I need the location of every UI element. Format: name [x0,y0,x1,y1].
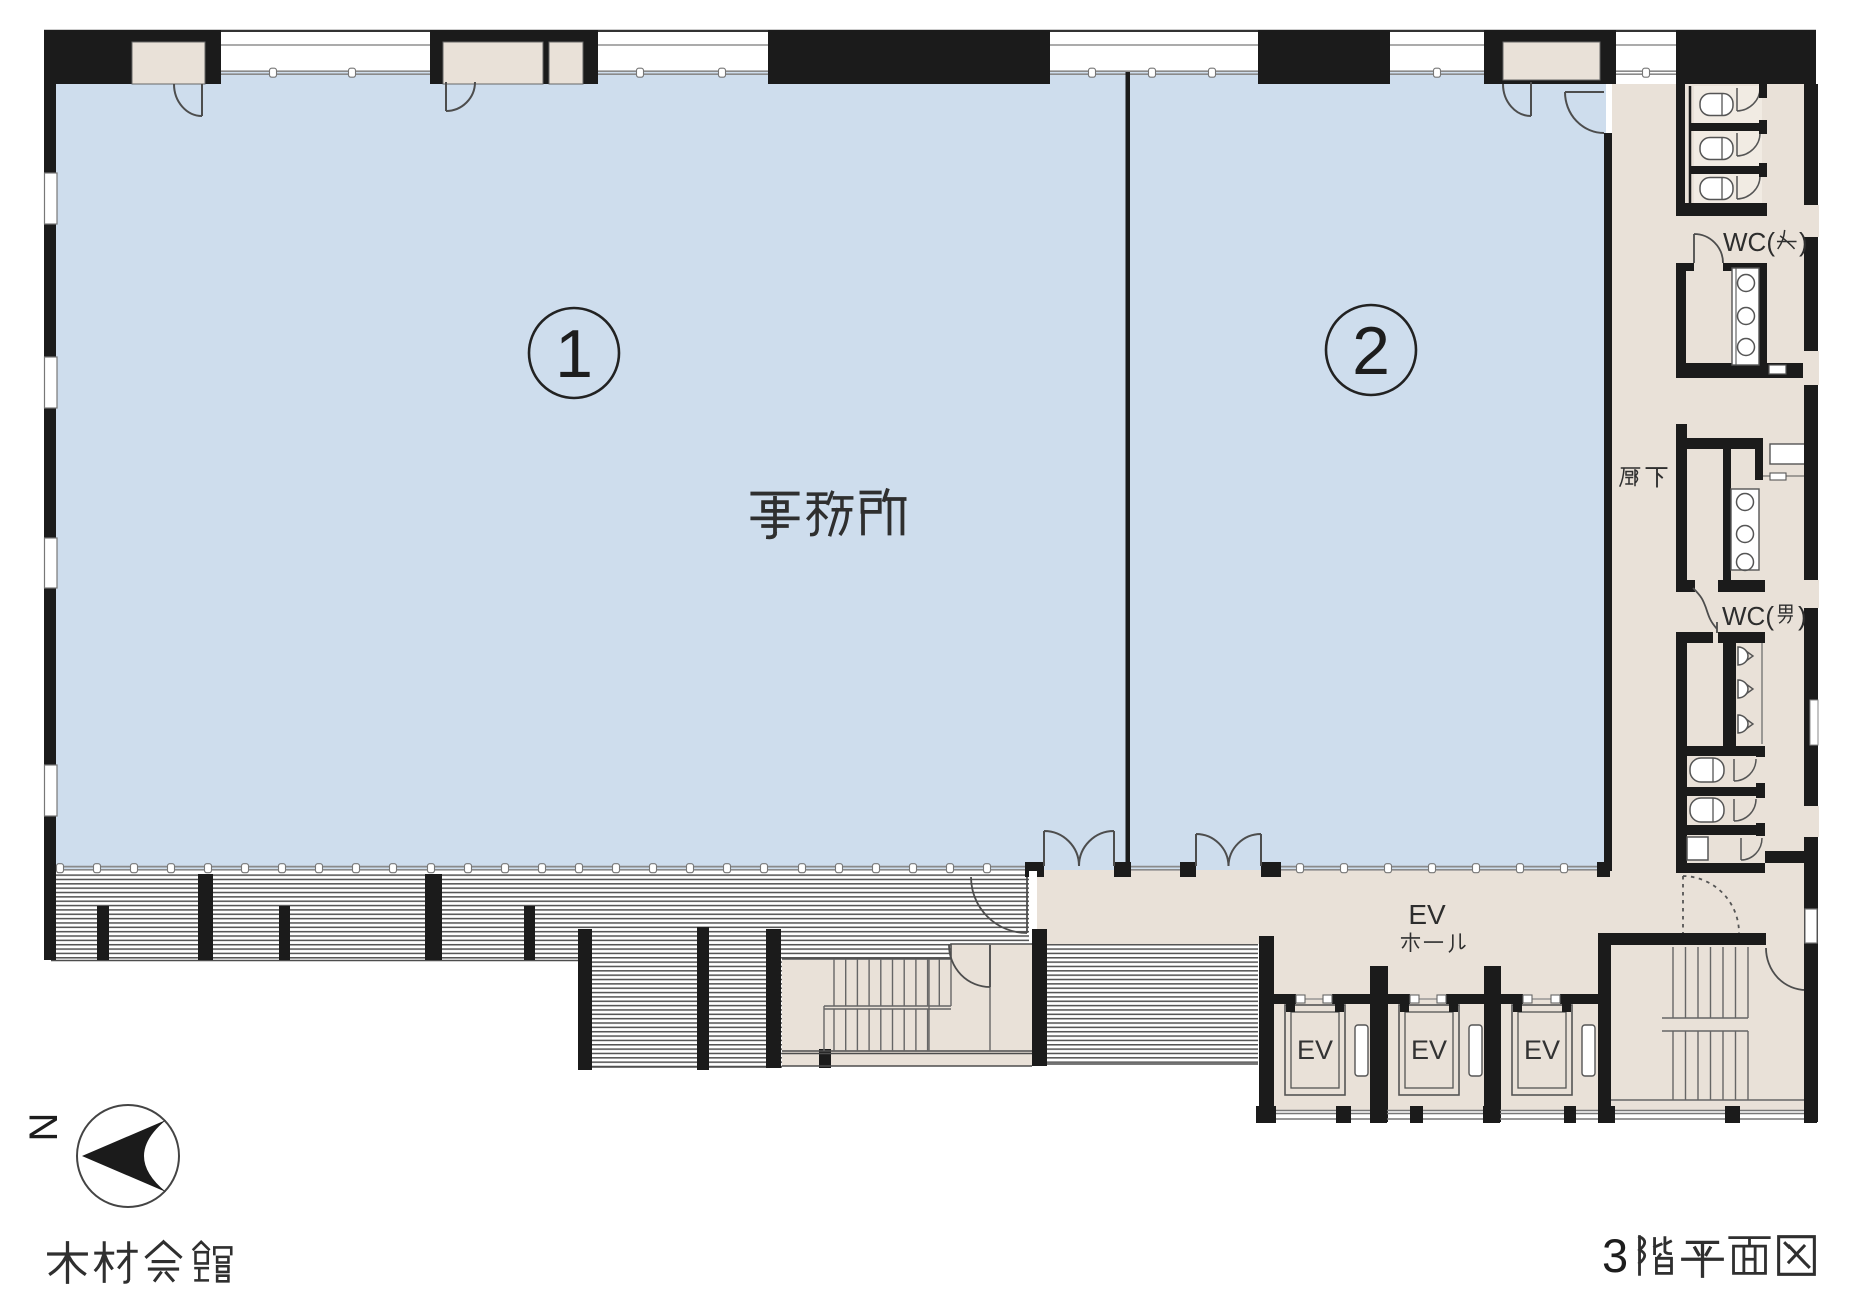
svg-text:3: 3 [1602,1229,1628,1282]
svg-text:EV: EV [1411,1035,1447,1065]
svg-text:EV: EV [1408,899,1446,930]
svg-text:WC(: WC( [1723,227,1775,257]
svg-text:): ) [1798,601,1807,631]
svg-text:): ) [1799,227,1808,257]
svg-text:WC(: WC( [1722,601,1774,631]
svg-text:N: N [22,1113,66,1142]
svg-text:EV: EV [1297,1035,1333,1065]
svg-text:2: 2 [1352,313,1390,389]
svg-text:1: 1 [555,316,593,392]
svg-text:EV: EV [1524,1035,1560,1065]
